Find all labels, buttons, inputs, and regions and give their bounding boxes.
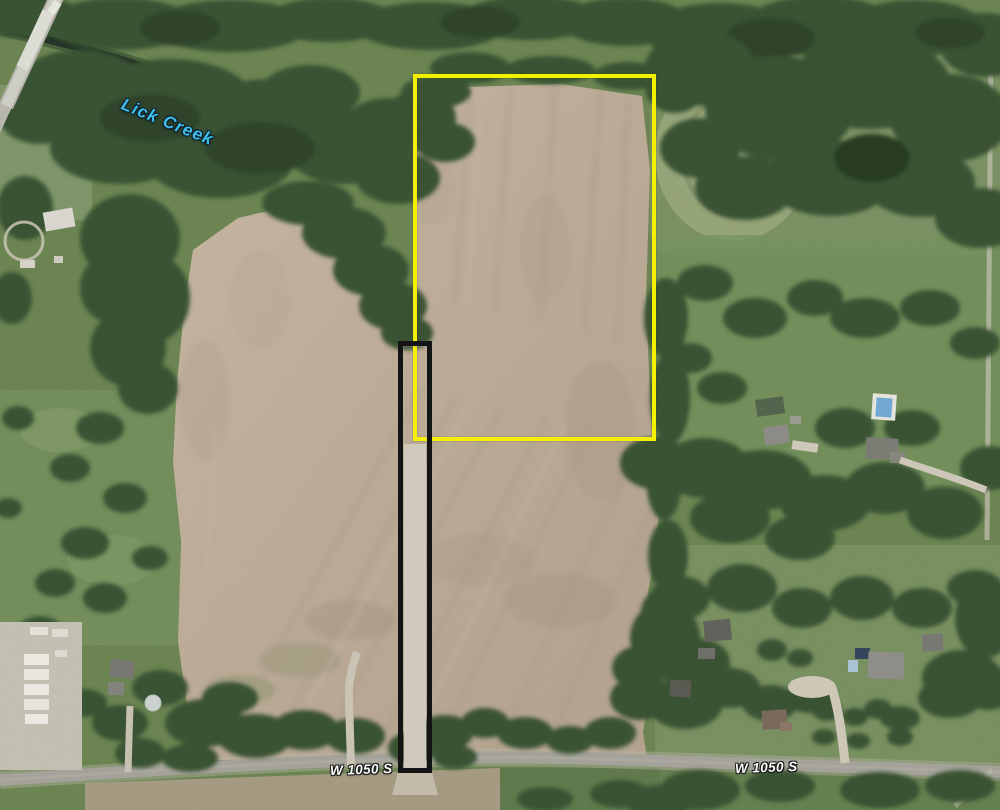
access-strip-boundary-black[interactable] (398, 341, 432, 773)
parcel-boundary-yellow[interactable] (413, 74, 656, 441)
satellite-map-view[interactable]: Lick Creek W 1050 S W 1050 S (0, 0, 1000, 810)
